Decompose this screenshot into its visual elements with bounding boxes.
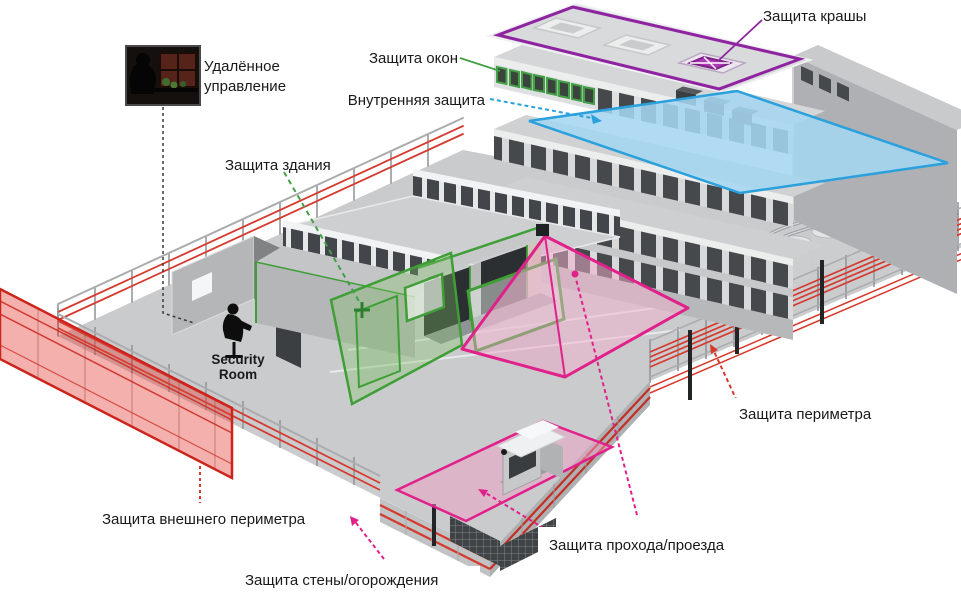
label-perimeter-protection: Защита периметра [739,406,872,423]
label-security-room-line1: Security [211,352,265,367]
label-building-protection: Защита здания [225,157,331,174]
label-roof-protection: Защита крашы [763,8,866,25]
label-passage-protection: Защита прохода/проезда [549,537,725,554]
security-system-diagram: Защита крашы Удалённое управление Защита… [0,0,961,602]
sensor-post [432,504,436,546]
label-security-room-line2: Room [219,367,257,382]
label-remote-line2: управление [204,78,286,95]
sensor-post [688,330,692,400]
label-remote-line1: Удалённое [204,58,280,75]
motion-sensor-icon [536,224,549,236]
diagram-canvas: Защита крашы Удалённое управление Защита… [0,0,961,602]
wall-callout-line [353,519,384,559]
label-outer-perimeter-protection: Защита внешнего периметра [102,511,306,528]
remote-control-photo [126,46,200,105]
camera-icon [501,449,507,455]
label-internal-protection: Внутренняя защита [348,92,486,109]
label-wall-fence-protection: Защита стены/огорождения [245,572,438,589]
label-window-protection: Защита окон [369,50,458,67]
sensor-post [820,260,824,324]
pointer-dot-icon [572,271,579,278]
